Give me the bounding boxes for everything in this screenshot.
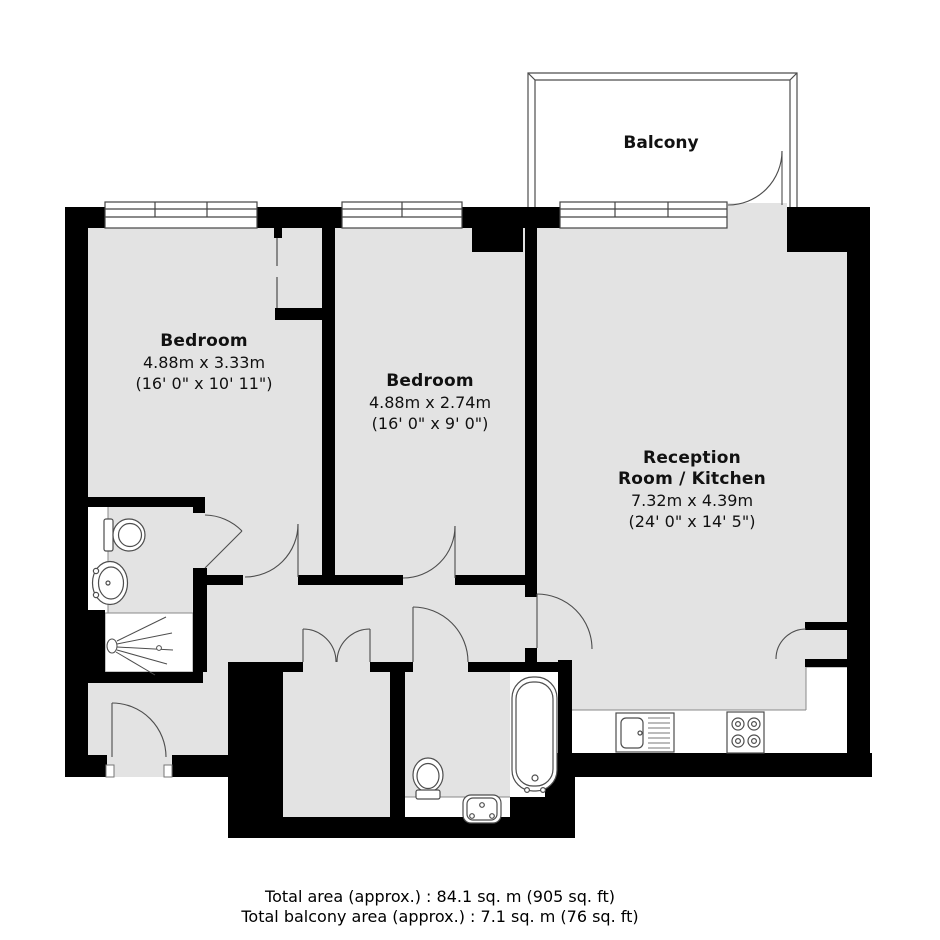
shower-tray [105,613,193,672]
kitchen-sink [616,713,674,752]
balcony-doorway-floor [727,203,787,228]
hallway-floor [207,585,525,662]
reception-window [560,202,727,228]
bedroom-1-window [105,202,257,228]
ensuite-washbasin [93,562,128,605]
cupboard-floor [283,672,390,817]
windows [105,202,727,228]
kitchen-counter-return [806,667,847,713]
bathroom-toilet [413,758,443,799]
recess-jamb-top [805,622,847,630]
total-area-text: Total area (approx.) : 84.1 sq. m (905 s… [0,887,880,907]
floorplan: Bedroom 4.88m x 3.33m (16' 0" x 10' 11")… [0,0,940,940]
total-balcony-area-text: Total balcony area (approx.) : 7.1 sq. m… [0,907,880,927]
area-summary: Total area (approx.) : 84.1 sq. m (905 s… [0,887,880,927]
balcony-door [728,151,782,205]
bathtub [512,677,557,792]
bedroom-2-window [342,202,462,228]
bedroom-1-floor-nook [205,497,322,575]
bedroom-1-floor [88,228,322,497]
bathroom-washbasin [463,795,501,823]
floorplan-drawing [0,0,940,940]
entry-hall-floor [88,683,228,755]
balcony-outline [528,73,797,207]
recess-jamb-bottom [805,659,847,667]
kitchen-counter [572,710,847,753]
reception-floor [537,228,847,710]
kitchen-hob [727,712,764,753]
bedroom-2-floor [335,228,525,575]
ensuite-toilet [104,519,145,551]
